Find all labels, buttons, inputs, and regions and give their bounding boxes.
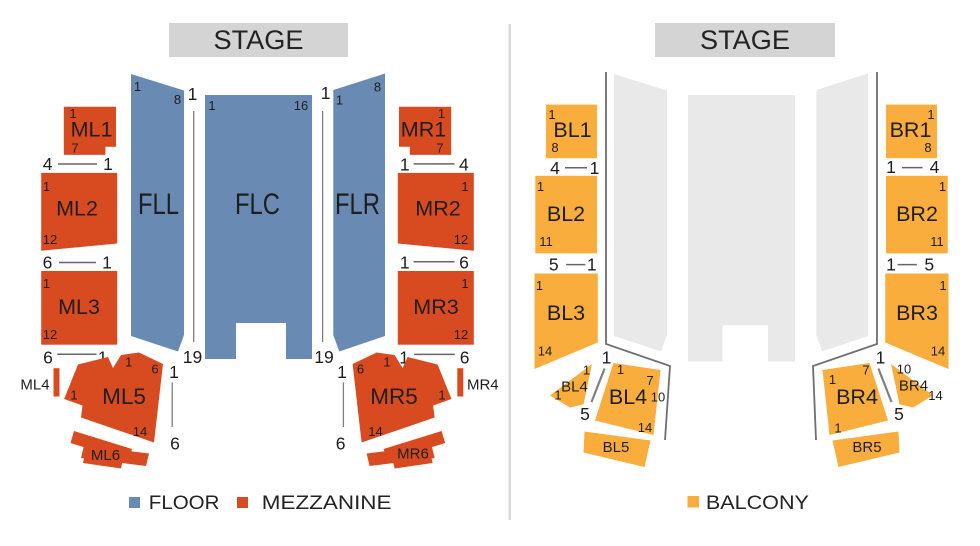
svg-text:ML1: ML1 — [71, 118, 113, 142]
svg-text:BL5: BL5 — [603, 439, 630, 456]
svg-text:1: 1 — [537, 179, 544, 194]
svg-text:FLL: FLL — [138, 188, 179, 221]
svg-text:MR2: MR2 — [415, 197, 460, 221]
svg-text:1: 1 — [583, 363, 590, 378]
svg-text:1: 1 — [400, 155, 410, 175]
svg-text:16: 16 — [294, 98, 308, 113]
svg-text:BL4: BL4 — [561, 379, 588, 396]
svg-text:ML6: ML6 — [91, 447, 120, 464]
svg-text:FLR: FLR — [335, 188, 380, 221]
svg-text:7: 7 — [862, 363, 869, 378]
svg-text:BR4: BR4 — [836, 385, 878, 409]
svg-text:6: 6 — [151, 362, 158, 377]
svg-text:1: 1 — [438, 106, 445, 121]
svg-text:4: 4 — [43, 154, 53, 174]
svg-text:BL2: BL2 — [547, 202, 585, 226]
svg-text:12: 12 — [43, 327, 57, 342]
svg-text:11: 11 — [539, 234, 553, 249]
svg-text:10: 10 — [651, 390, 665, 405]
svg-text:MR1: MR1 — [401, 118, 446, 142]
svg-text:5: 5 — [549, 255, 559, 275]
svg-text:1: 1 — [939, 278, 946, 293]
svg-text:MEZZANINE: MEZZANINE — [262, 492, 392, 514]
svg-text:14: 14 — [638, 420, 652, 435]
svg-text:1: 1 — [337, 362, 347, 382]
svg-text:1: 1 — [336, 93, 343, 108]
svg-text:FLC: FLC — [235, 188, 280, 221]
svg-text:4: 4 — [550, 158, 560, 178]
svg-text:4: 4 — [459, 155, 469, 175]
svg-text:1: 1 — [321, 83, 331, 103]
svg-text:7: 7 — [436, 141, 443, 156]
svg-text:5: 5 — [580, 404, 590, 424]
svg-text:1: 1 — [103, 154, 113, 174]
svg-text:BL4: BL4 — [609, 385, 647, 409]
svg-text:6: 6 — [336, 434, 346, 454]
svg-text:BALCONY: BALCONY — [706, 492, 809, 514]
svg-text:1: 1 — [208, 98, 215, 113]
svg-text:STAGE: STAGE — [214, 25, 304, 55]
svg-text:MR4: MR4 — [467, 377, 499, 394]
svg-text:1: 1 — [102, 253, 112, 273]
svg-text:1: 1 — [461, 179, 468, 194]
svg-text:7: 7 — [71, 141, 78, 156]
svg-text:6: 6 — [459, 253, 469, 273]
svg-text:5: 5 — [924, 255, 934, 275]
svg-text:1: 1 — [886, 157, 896, 177]
svg-text:1: 1 — [548, 107, 555, 122]
svg-text:7: 7 — [646, 373, 653, 388]
svg-text:4: 4 — [930, 157, 940, 177]
svg-text:ML2: ML2 — [56, 197, 98, 221]
svg-text:1: 1 — [70, 388, 77, 403]
svg-text:MR6: MR6 — [397, 446, 429, 463]
svg-text:1: 1 — [400, 253, 410, 273]
svg-text:14: 14 — [368, 424, 382, 439]
svg-text:1: 1 — [939, 179, 946, 194]
svg-text:12: 12 — [43, 232, 57, 247]
svg-text:BR3: BR3 — [896, 301, 938, 325]
svg-text:ML5: ML5 — [102, 384, 146, 409]
svg-text:14: 14 — [928, 388, 942, 403]
svg-text:MR3: MR3 — [413, 295, 458, 319]
svg-text:6: 6 — [43, 347, 53, 367]
svg-text:8: 8 — [374, 80, 381, 95]
svg-text:BL3: BL3 — [547, 301, 585, 325]
svg-text:1: 1 — [829, 372, 836, 387]
svg-text:1: 1 — [587, 255, 597, 275]
svg-text:1: 1 — [590, 158, 600, 178]
svg-text:19: 19 — [183, 347, 202, 367]
svg-text:6: 6 — [460, 347, 470, 367]
svg-text:BR4: BR4 — [899, 378, 928, 395]
svg-text:FLOOR: FLOOR — [149, 492, 220, 514]
svg-text:12: 12 — [454, 232, 468, 247]
svg-text:6: 6 — [357, 362, 364, 377]
svg-text:1: 1 — [536, 278, 543, 293]
svg-text:BR2: BR2 — [896, 202, 938, 226]
svg-text:8: 8 — [924, 140, 931, 155]
svg-text:1: 1 — [927, 107, 934, 122]
svg-text:STAGE: STAGE — [700, 25, 790, 55]
svg-text:1: 1 — [383, 355, 390, 370]
svg-text:19: 19 — [314, 347, 333, 367]
svg-text:BR1: BR1 — [890, 118, 932, 142]
svg-text:12: 12 — [454, 327, 468, 342]
svg-text:1: 1 — [69, 106, 76, 121]
svg-text:1: 1 — [169, 362, 179, 382]
svg-text:14: 14 — [538, 344, 552, 359]
svg-text:1: 1 — [602, 348, 612, 368]
svg-text:1: 1 — [188, 84, 198, 104]
svg-text:8: 8 — [551, 140, 558, 155]
svg-text:14: 14 — [133, 424, 147, 439]
svg-text:1: 1 — [617, 362, 624, 377]
svg-text:1: 1 — [134, 79, 141, 94]
svg-text:11: 11 — [930, 234, 944, 249]
svg-text:1: 1 — [886, 255, 896, 275]
svg-text:1: 1 — [125, 355, 132, 370]
svg-text:6: 6 — [170, 434, 180, 454]
svg-text:BR5: BR5 — [852, 439, 881, 456]
svg-text:5: 5 — [894, 404, 904, 424]
svg-text:1: 1 — [834, 421, 841, 436]
svg-text:1: 1 — [876, 348, 886, 368]
svg-text:BL1: BL1 — [553, 118, 591, 142]
svg-text:6: 6 — [43, 253, 53, 273]
svg-text:14: 14 — [931, 344, 945, 359]
svg-text:ML4: ML4 — [20, 377, 49, 394]
svg-text:1: 1 — [554, 388, 561, 403]
svg-text:10: 10 — [897, 362, 911, 377]
svg-text:MR5: MR5 — [370, 384, 418, 409]
svg-text:1: 1 — [43, 179, 50, 194]
svg-text:1: 1 — [438, 388, 445, 403]
svg-text:1: 1 — [461, 276, 468, 291]
svg-text:1: 1 — [43, 276, 50, 291]
svg-text:ML3: ML3 — [58, 295, 100, 319]
svg-text:8: 8 — [174, 92, 181, 107]
